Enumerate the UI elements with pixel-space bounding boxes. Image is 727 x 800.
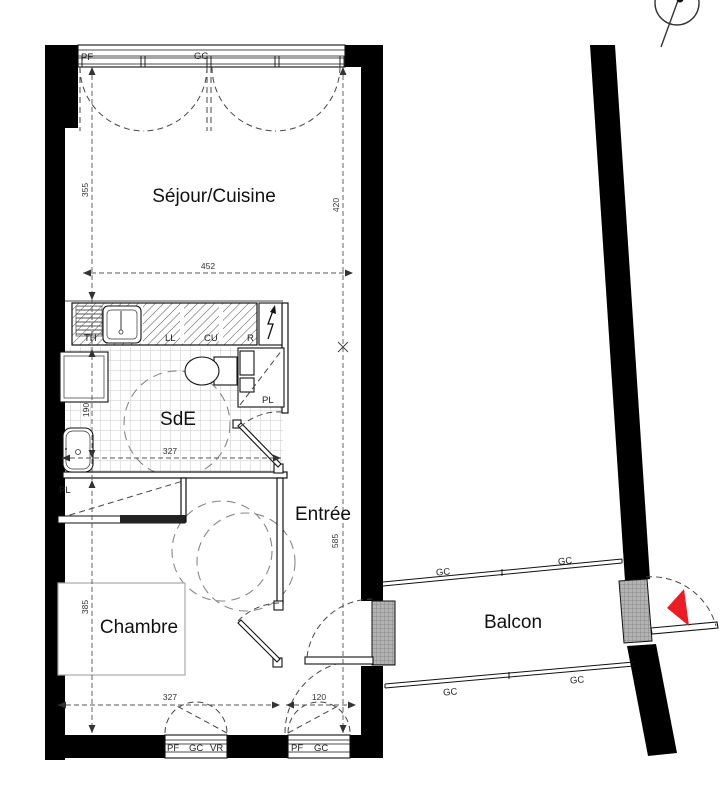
- dim-sejour-left: 355: [80, 183, 90, 197]
- floor-plan-drawing: PF GC PF GC VR PF GC: [0, 0, 727, 800]
- kitchen-label-cu: CU: [204, 333, 218, 344]
- window-label-pf-bl: PF: [167, 743, 179, 754]
- rail-label-gc-bl: GC: [443, 686, 458, 698]
- dim-sde-height: 190: [81, 403, 91, 417]
- bottom-right-window: PF GC: [288, 735, 350, 758]
- window-label-pf-br: PF: [291, 743, 303, 754]
- kitchen-label-ll: LL: [165, 333, 176, 344]
- room-label-balcon: Balcon: [484, 612, 542, 633]
- kitchen-counter: TH LL CU R: [65, 301, 283, 345]
- top-window-band: PF GC: [78, 45, 345, 67]
- rail-label-gc-tr: GC: [558, 555, 573, 567]
- room-label-sejour: Séjour/Cuisine: [152, 186, 276, 207]
- balcony-door: [305, 599, 395, 665]
- window-label-vr-bl: VR: [210, 743, 223, 754]
- window-label-gc-bl: GC: [189, 743, 203, 754]
- dim-sde-width: 327: [163, 446, 177, 456]
- bottom-left-window: PF GC VR: [165, 735, 227, 758]
- slanted-building-wall: [590, 45, 677, 756]
- dim-sejour-width: 452: [201, 261, 215, 271]
- dim-entree-height: 585: [330, 534, 340, 548]
- north-arrow-icon: [655, 0, 699, 47]
- kitchen-label-th: TH: [84, 333, 97, 344]
- electrical-cabinet: [259, 303, 282, 345]
- dim-sejour-right: 420: [331, 198, 341, 212]
- dim-chambre-width: 327: [163, 692, 177, 702]
- bottom-window-swings: [165, 661, 357, 733]
- kitchen-label-r: R: [247, 333, 254, 344]
- shower-tray: [60, 352, 108, 402]
- room-labels: Séjour/Cuisine SdE Chambre Entrée Balcon: [100, 186, 542, 638]
- kitchen-sink: [103, 306, 141, 343]
- window-label-gc-top: GC: [194, 51, 208, 62]
- chambre-closet: PL: [58, 481, 185, 523]
- closet-label-pl-sde: PL: [262, 395, 274, 406]
- floor-plan-canvas: PF GC PF GC VR PF GC: [0, 0, 727, 800]
- rail-label-gc-tl: GC: [436, 566, 451, 578]
- dim-chambre-height: 385: [80, 600, 90, 614]
- room-label-entree: Entrée: [295, 504, 351, 525]
- top-window-swings: [80, 67, 340, 131]
- room-label-chambre: Chambre: [100, 617, 178, 638]
- room-label-sde: SdE: [160, 409, 196, 430]
- window-label-pf-top: PF: [81, 52, 93, 63]
- rail-label-gc-br: GC: [570, 674, 585, 686]
- closet-label-pl-chambre: PL: [59, 485, 71, 496]
- dim-entree-width: 120: [312, 692, 326, 702]
- sde-closet: PL: [238, 348, 284, 407]
- entry-direction-arrow: [667, 589, 689, 626]
- toilet: [185, 357, 237, 385]
- towel-heater: [76, 306, 102, 336]
- window-label-gc-br: GC: [314, 743, 328, 754]
- entry-door: [619, 577, 718, 643]
